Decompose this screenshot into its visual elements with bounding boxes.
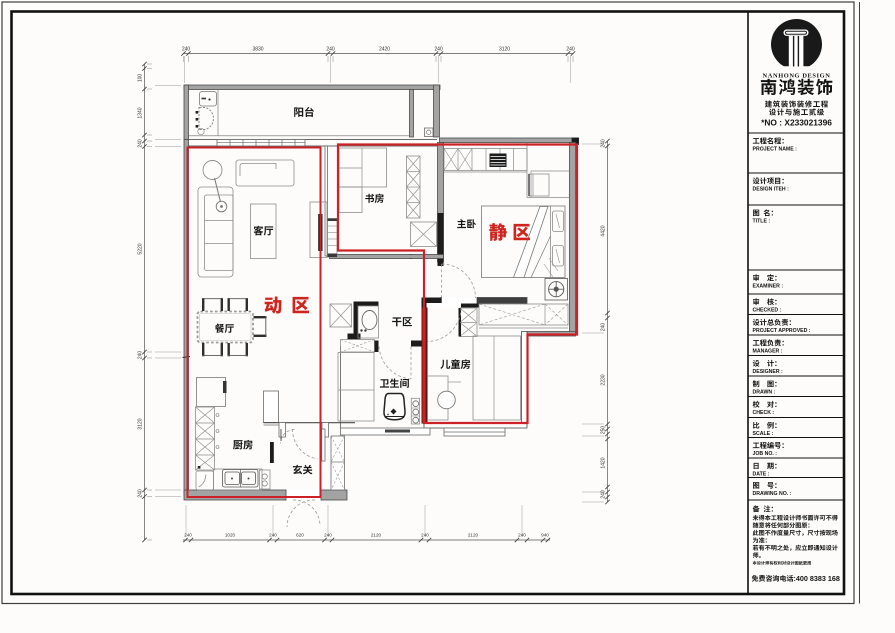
svg-text:DESIGN ITEH :: DESIGN ITEH : [753, 187, 790, 193]
svg-text:100: 100 [138, 74, 144, 83]
svg-text:240: 240 [434, 47, 443, 53]
svg-text:240: 240 [184, 533, 192, 538]
svg-text:3120: 3120 [138, 418, 144, 429]
svg-text:EXAMINER :: EXAMINER : [753, 284, 784, 290]
svg-text:240: 240 [326, 47, 335, 53]
svg-text:2230: 2230 [601, 374, 607, 385]
svg-text:1340: 1340 [138, 107, 144, 118]
svg-text:240: 240 [138, 489, 144, 498]
svg-text:240: 240 [421, 533, 429, 538]
svg-text:240: 240 [566, 47, 575, 53]
svg-text:PROJECT NAME :: PROJECT NAME : [753, 147, 798, 153]
svg-text:DRAWING NO. :: DRAWING NO. : [753, 491, 792, 497]
svg-text:2420: 2420 [379, 47, 390, 53]
svg-text:DATE :: DATE : [753, 472, 770, 478]
svg-text:240: 240 [601, 490, 607, 499]
svg-text:240: 240 [182, 47, 191, 53]
svg-text:2120: 2120 [371, 533, 382, 538]
svg-text:940: 940 [541, 533, 549, 538]
svg-text:240: 240 [324, 533, 332, 538]
svg-text:3830: 3830 [252, 47, 263, 53]
svg-text:PROJECT APPROVED :: PROJECT APPROVED : [753, 328, 811, 334]
svg-text:4420: 4420 [601, 225, 607, 236]
svg-text:620: 620 [296, 533, 304, 538]
svg-text:240: 240 [601, 323, 607, 332]
svg-text:240: 240 [138, 351, 144, 360]
svg-text:NANHONG DESIGN: NANHONG DESIGN [763, 73, 831, 80]
svg-text:250: 250 [601, 426, 607, 435]
svg-text:2120: 2120 [468, 533, 479, 538]
svg-text:TITLE :: TITLE : [753, 219, 771, 225]
svg-text:MANAGER :: MANAGER : [753, 349, 783, 355]
svg-text:3120: 3120 [499, 47, 510, 53]
svg-text:DRAWN :: DRAWN : [753, 390, 776, 396]
svg-text:240: 240 [138, 139, 144, 148]
svg-text:5220: 5220 [138, 243, 144, 254]
svg-text:1020: 1020 [225, 533, 236, 538]
svg-text::400 8383 168: :400 8383 168 [794, 574, 840, 583]
svg-text:JOB NO. :: JOB NO. : [753, 451, 778, 457]
svg-text:*NO : X233021396: *NO : X233021396 [761, 118, 832, 128]
svg-text:CHECKED :: CHECKED : [753, 308, 782, 314]
svg-text:CHECK :: CHECK : [753, 410, 775, 416]
svg-text:DESIGNER :: DESIGNER : [753, 369, 784, 375]
svg-text:SCALE :: SCALE : [753, 431, 774, 437]
svg-text:240: 240 [601, 139, 607, 148]
svg-text:240: 240 [269, 533, 277, 538]
svg-text:1420: 1420 [601, 457, 607, 468]
svg-text:240: 240 [518, 533, 526, 538]
